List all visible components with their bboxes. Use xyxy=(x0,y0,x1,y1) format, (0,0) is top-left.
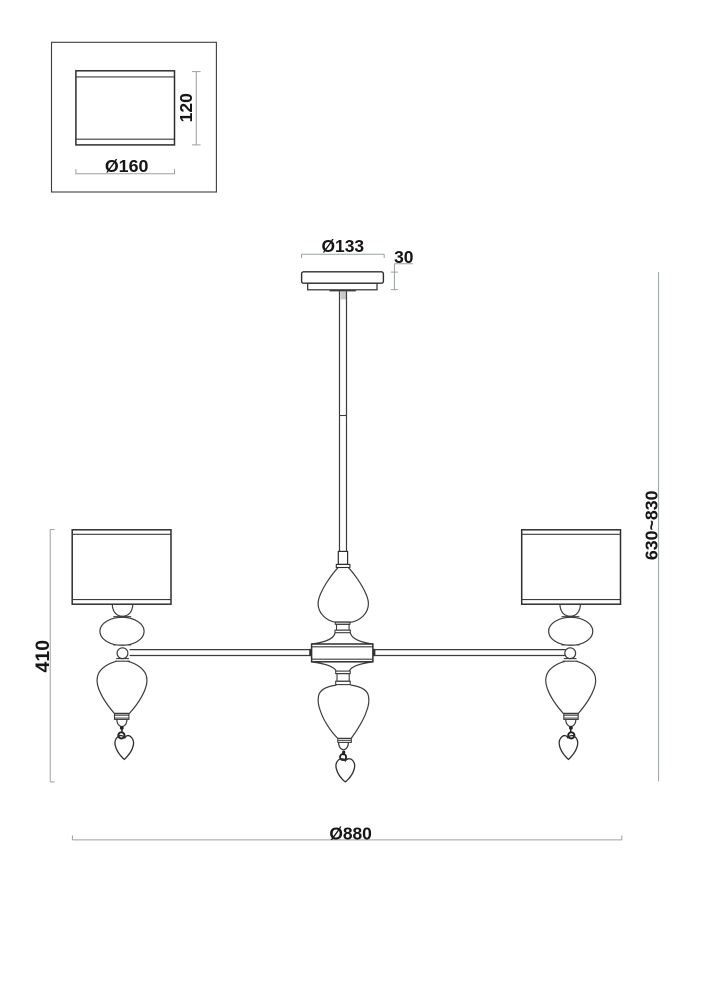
svg-text:410: 410 xyxy=(32,640,54,673)
svg-text:Ø880: Ø880 xyxy=(329,824,372,844)
svg-text:Ø133: Ø133 xyxy=(322,236,365,256)
svg-text:Ø160: Ø160 xyxy=(105,156,149,176)
svg-text:630~830: 630~830 xyxy=(642,490,662,560)
svg-text:120: 120 xyxy=(176,93,196,122)
